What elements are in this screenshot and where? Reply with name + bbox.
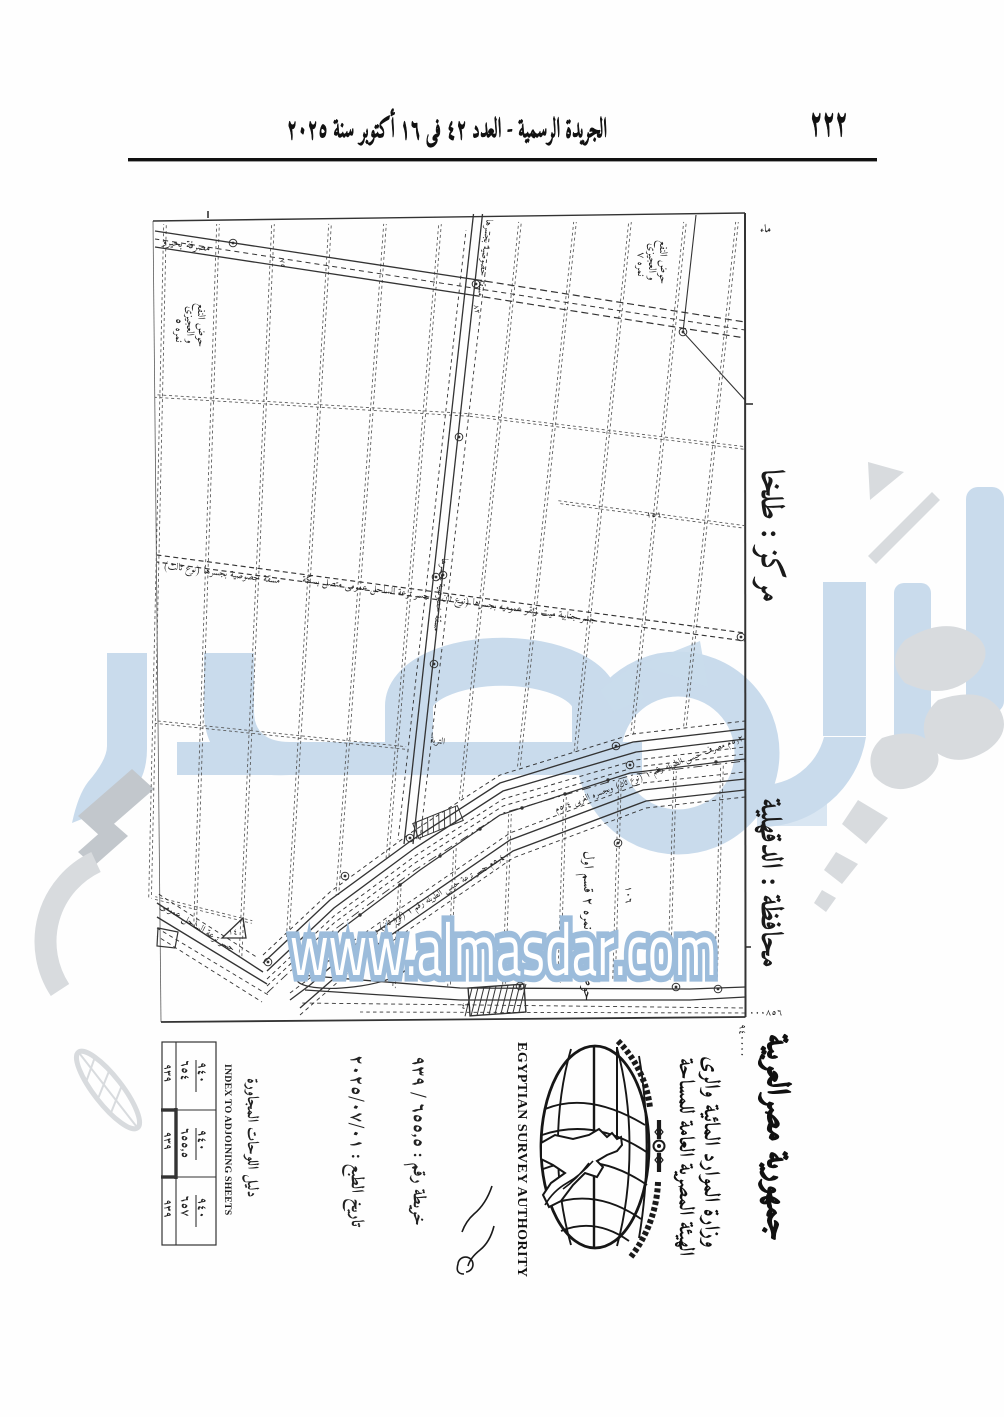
svg-text:INDEX TO ADJOINING SHEETS: INDEX TO ADJOINING SHEETS — [222, 1064, 233, 1216]
svg-text:EGYPTIAN SURVEY AUTHORITY: EGYPTIAN SURVEY AUTHORITY — [514, 1042, 529, 1278]
